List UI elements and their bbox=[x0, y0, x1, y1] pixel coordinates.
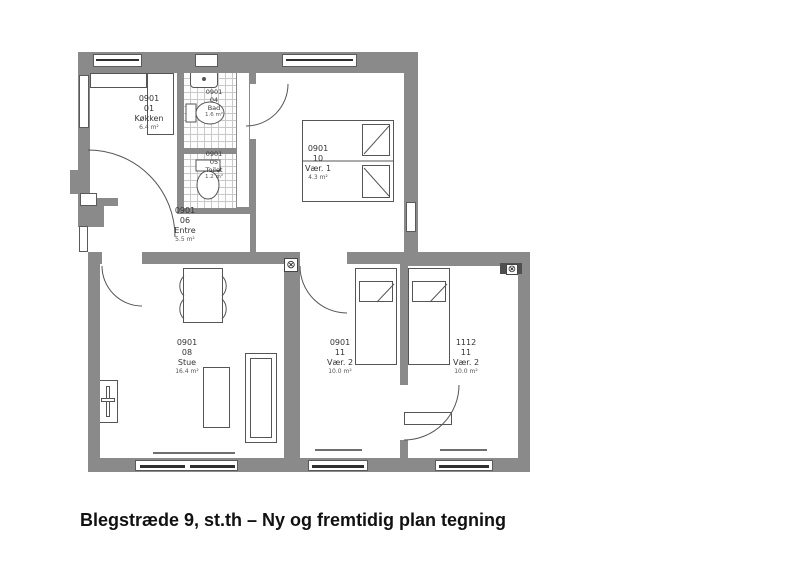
window-sill-stue bbox=[153, 452, 235, 454]
wall-block-left-entre bbox=[78, 206, 104, 227]
room-no: 05 bbox=[192, 158, 236, 166]
bed-pillow bbox=[359, 281, 393, 302]
room-id: 0901 bbox=[192, 150, 236, 158]
window-sill-vaer2a bbox=[315, 449, 362, 451]
room-label-vaer1: 0901 10 Vær. 1 4.3 m² bbox=[288, 144, 348, 182]
room-no: 04 bbox=[192, 96, 236, 104]
room-area: 5.5 m² bbox=[155, 236, 215, 244]
window-sill-vaer2b bbox=[440, 449, 487, 451]
dining-table bbox=[183, 268, 223, 323]
window-glass-bar bbox=[96, 59, 139, 61]
door-arc-stue bbox=[102, 266, 142, 306]
wall-divider-mid bbox=[142, 252, 284, 264]
entry-door-left bbox=[79, 226, 88, 252]
window-glass-bar bbox=[286, 59, 353, 61]
room-name: Bad bbox=[192, 104, 236, 112]
window-glass-bar bbox=[312, 465, 364, 468]
room-label-koekken: 0901 01 Køkken 6.4 m² bbox=[119, 94, 179, 132]
coffee-table bbox=[203, 367, 230, 428]
partition-vaer2-upper bbox=[400, 264, 408, 385]
room-name: Stue bbox=[157, 358, 217, 368]
door-arc-vaer1 bbox=[246, 84, 288, 126]
vent-symbol-vaer2b: ⊗ bbox=[506, 264, 518, 275]
bed-pillow bbox=[412, 281, 446, 302]
exterior-wall-right-upper bbox=[404, 56, 418, 266]
room-id: 0901 bbox=[310, 338, 370, 348]
sofa-cushion bbox=[250, 358, 272, 438]
room-label-vaer2b: 1112 11 Vær. 2 10.0 m² bbox=[436, 338, 496, 376]
duct-shaft bbox=[236, 56, 250, 208]
exterior-wall-right-lower bbox=[518, 262, 530, 472]
wall-divider-right bbox=[347, 252, 404, 264]
room-no: 08 bbox=[157, 348, 217, 358]
wall-kitchen-bath bbox=[177, 56, 184, 214]
room-label-vaer2a: 0901 11 Vær. 2 10.0 m² bbox=[310, 338, 370, 376]
partition-vaer2-lower bbox=[400, 440, 408, 458]
room-id: 0901 bbox=[157, 338, 217, 348]
room-no: 10 bbox=[288, 154, 348, 164]
room-no: 06 bbox=[155, 216, 215, 226]
room-area: 1.2 m² bbox=[192, 174, 236, 181]
room-name: Entre bbox=[155, 226, 215, 236]
room-name: Vær. 1 bbox=[288, 164, 348, 174]
room-id: 0901 bbox=[288, 144, 348, 154]
room-area: 10.0 m² bbox=[436, 368, 496, 376]
plan-caption: Blegstræde 9, st.th – Ny og fremtidig pl… bbox=[80, 510, 506, 531]
radiator-inner bbox=[101, 398, 115, 402]
room-name: Vær. 2 bbox=[310, 358, 370, 368]
room-no: 11 bbox=[310, 348, 370, 358]
window-glass-bar bbox=[140, 465, 185, 468]
room-id: 0901 bbox=[192, 88, 236, 96]
door-leaf-vaer2b bbox=[404, 412, 452, 425]
wall-divider-left bbox=[90, 252, 102, 264]
exterior-wall-left-lower bbox=[88, 252, 100, 472]
bed-pillow bbox=[362, 165, 390, 198]
room-id: 0901 bbox=[119, 94, 179, 104]
room-area: 4.3 m² bbox=[288, 174, 348, 182]
room-name: Køkken bbox=[119, 114, 179, 124]
wall-bath-vaer1-upper bbox=[250, 56, 256, 84]
room-id: 1112 bbox=[436, 338, 496, 348]
window-left-kitchen bbox=[79, 75, 89, 128]
floor-plan: ⊗ ⊗ 0901 01 Køkken 6.4 m² 0901 04 Bad 1.… bbox=[0, 0, 800, 566]
kitchen-counter bbox=[90, 73, 147, 88]
window-right-vaer1 bbox=[406, 202, 416, 232]
window-glass-bar bbox=[190, 465, 235, 468]
room-label-stue: 0901 08 Stue 16.4 m² bbox=[157, 338, 217, 376]
room-area: 16.4 m² bbox=[157, 368, 217, 376]
window-glass-bar bbox=[439, 465, 489, 468]
room-area: 1.6 m² bbox=[192, 112, 236, 119]
door-arc-vaer2a bbox=[300, 266, 347, 313]
room-label-bad: 0901 04 Bad 1.6 m² bbox=[192, 88, 236, 119]
room-name: Toilet bbox=[192, 166, 236, 174]
bay-block-left bbox=[70, 170, 82, 194]
room-no: 11 bbox=[436, 348, 496, 358]
room-label-toilet: 0901 05 Toilet 1.2 m² bbox=[192, 150, 236, 181]
room-no: 01 bbox=[119, 104, 179, 114]
bed-pillow bbox=[362, 124, 390, 156]
vent-symbol-stue: ⊗ bbox=[284, 258, 298, 272]
room-area: 10.0 m² bbox=[310, 368, 370, 376]
room-name: Vær. 2 bbox=[436, 358, 496, 368]
wall-bath-vaer1-lower bbox=[250, 139, 256, 252]
room-area: 6.4 m² bbox=[119, 124, 179, 132]
window-top-bath bbox=[195, 54, 218, 67]
room-label-entre: 0901 06 Entre 5.5 m² bbox=[155, 206, 215, 244]
room-id: 0901 bbox=[155, 206, 215, 216]
window-left-entre bbox=[80, 193, 97, 206]
wall-stue-vaer2 bbox=[284, 252, 300, 458]
